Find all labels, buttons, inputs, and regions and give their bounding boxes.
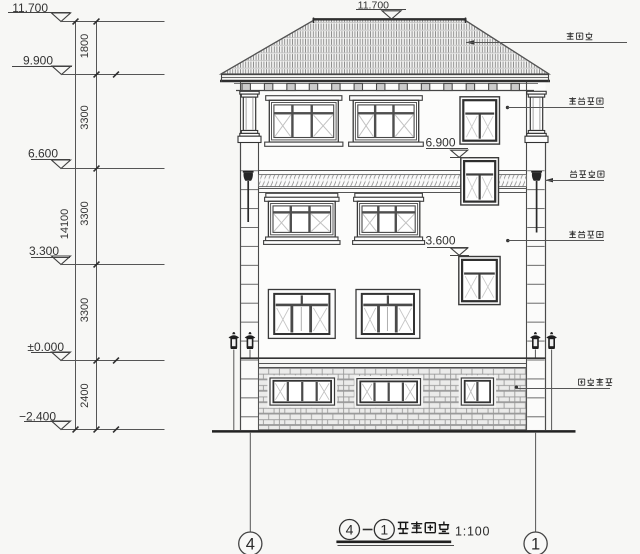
svg-text:1:100: 1:100: [455, 525, 490, 539]
svg-text:3300: 3300: [79, 298, 91, 322]
svg-text:6.600: 6.600: [28, 147, 58, 161]
svg-text:4: 4: [246, 536, 255, 554]
svg-text:1: 1: [380, 522, 388, 538]
svg-text:1800: 1800: [79, 34, 91, 58]
svg-text:6.900: 6.900: [426, 135, 456, 149]
svg-text:2400: 2400: [79, 383, 91, 407]
svg-text:3300: 3300: [79, 105, 91, 129]
svg-text:3300: 3300: [79, 201, 91, 225]
svg-text:1: 1: [531, 536, 540, 554]
svg-text:4: 4: [346, 522, 354, 538]
svg-text:9.900: 9.900: [23, 54, 53, 68]
svg-text:3.600: 3.600: [426, 234, 456, 248]
svg-text:14100: 14100: [59, 209, 71, 240]
